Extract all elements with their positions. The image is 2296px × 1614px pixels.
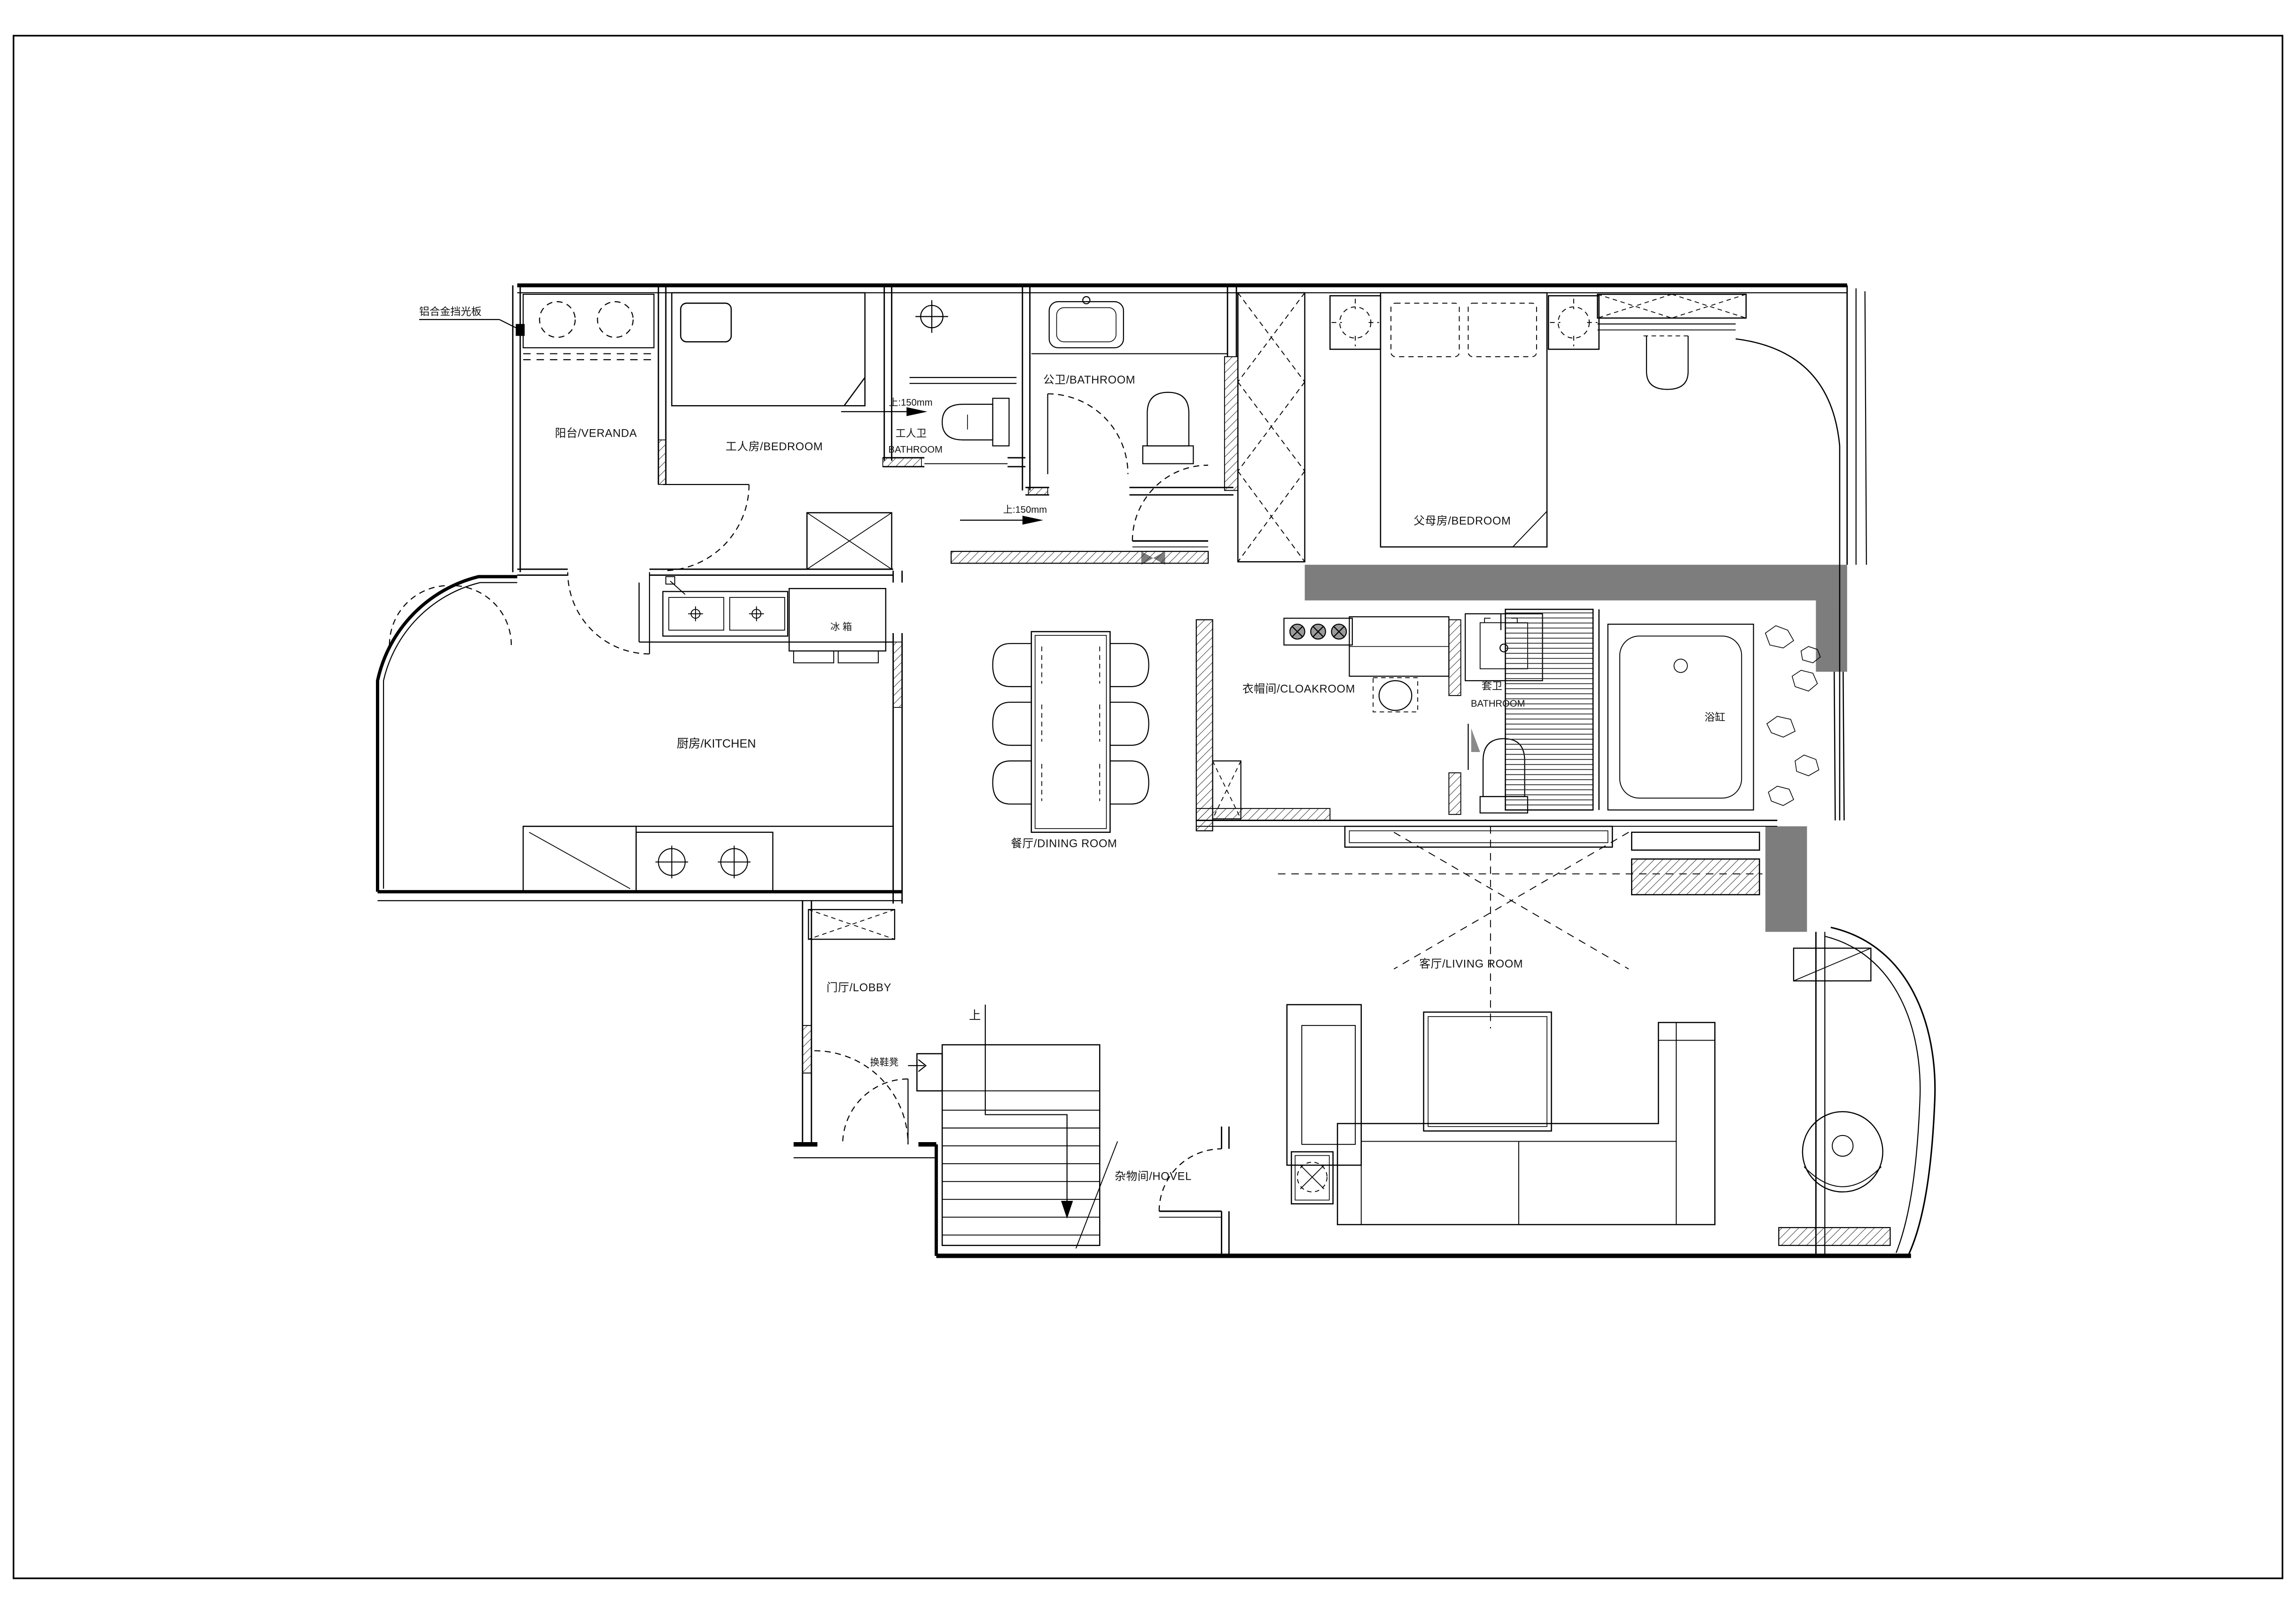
sheet-border <box>14 36 2282 1578</box>
label-fridge: 冰 箱 <box>830 622 852 633</box>
label-cloakroom: 衣帽间/CLOAKROOM <box>1242 683 1355 696</box>
label-step-up-2: 上:150mm <box>1003 504 1047 515</box>
label-veranda: 阳台/VERANDA <box>555 427 637 440</box>
label-parents-room: 父母房/BEDROOM <box>1414 515 1511 527</box>
rock-garden <box>1765 626 1820 806</box>
label-maid-bath-cn: 工人卫 <box>895 428 926 439</box>
label-public-bath: 公卫/BATHROOM <box>1043 374 1135 386</box>
floor-plan-drawing: 铝合金挡光板 阳台/VERANDA 工人房/BEDROOM 工人卫 BATHRO… <box>0 0 2296 1614</box>
label-dining: 餐厅/DINING ROOM <box>1011 837 1117 850</box>
maid-room <box>672 293 892 569</box>
label-shoe-bench: 换鞋凳 <box>870 1057 898 1068</box>
floor-plan-page: 铝合金挡光板 阳台/VERANDA 工人房/BEDROOM 工人卫 BATHRO… <box>0 0 2296 1614</box>
label-aluminum-panel: 铝合金挡光板 <box>419 306 482 317</box>
label-lobby: 门厅/LOBBY <box>827 981 891 994</box>
label-stairs-up: 上 <box>969 1009 981 1022</box>
label-maid-room: 工人房/BEDROOM <box>726 440 823 453</box>
terrace <box>1794 948 1883 1192</box>
cloakroom <box>1284 617 1449 712</box>
balcony-veranda <box>523 294 654 360</box>
label-step-up-1: 上:150mm <box>889 397 932 408</box>
label-maid-bath-en: BATHROOM <box>888 445 942 455</box>
dining-room <box>993 632 1149 832</box>
lobby-stairs <box>917 1005 1117 1249</box>
maid-bathroom <box>909 300 1016 446</box>
suite-bathroom <box>1465 609 1820 813</box>
interior-walls <box>517 285 1890 1256</box>
label-suite-bath-en: BATHROOM <box>1471 699 1525 709</box>
label-kitchen: 厨房/KITCHEN <box>677 737 756 751</box>
label-suite-bath-cn: 套卫 <box>1482 680 1502 692</box>
label-bathtub: 浴缸 <box>1704 712 1725 723</box>
label-living: 客厅/LIVING ROOM <box>1419 958 1523 971</box>
door-swings <box>390 394 1480 1217</box>
living-room <box>1278 826 1763 1224</box>
label-storage: 杂物间/HOVEL <box>1115 1170 1192 1183</box>
